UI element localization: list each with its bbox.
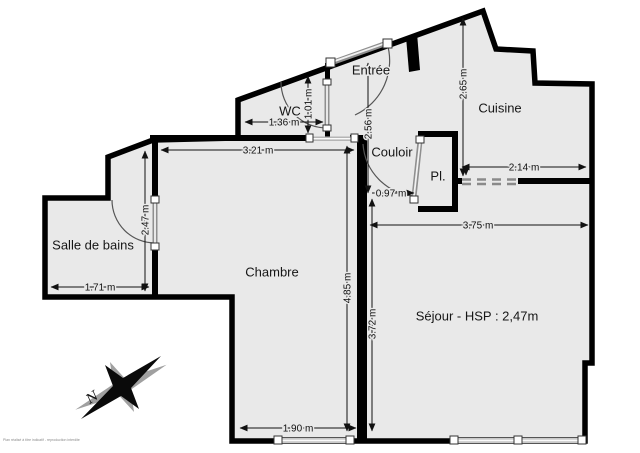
dimension-label: 1.71 m [85,283,116,294]
dimension-label: 0.97 m [376,189,407,200]
dimension-label: 1.01 m [304,89,315,120]
dimension-label: 2.14 m [509,163,540,174]
compass-rose: N [75,348,166,426]
closet-wall [418,206,458,212]
closet-wall [452,131,458,212]
floor-plan-page: 1.36 m 1.01 m 2.56 m 0.97 m 3.21 m 2.47 … [0,0,640,453]
room-label-sejour: Séjour - HSP : 2,47m [416,309,539,324]
dimension-label: 1.90 m [283,424,314,435]
watermark-text: Plan réalisé à titre indicatif - reprodu… [3,438,80,442]
compass-star [81,356,161,419]
wall [518,178,594,184]
dimension-label: 2.56 m [364,109,375,140]
dimension-label: 3.75 m [463,221,494,232]
dimension-label: 3.21 m [243,146,274,157]
room-label-entree: Entrée [352,63,390,78]
room-label-couloir: Couloir [371,145,413,160]
living-room-window [450,436,586,444]
dimension-label: 2.65 m [459,69,470,100]
dimension-label: 1.36 m [269,118,300,129]
room-label-cuisine: Cuisine [478,101,521,116]
room-label-placard: Pl. [430,169,445,184]
dimension-label: 2.47 m [141,205,152,236]
dimension-label: 4.85 m [343,273,354,304]
wall [150,135,313,141]
wall [152,140,158,198]
room-label-salle-de-bains: Salle de bains [52,238,134,253]
wall [152,246,158,297]
dimension-label: 3.72 m [368,309,379,340]
bedroom-window [274,436,354,444]
room-label-wc: WC [279,104,301,119]
floor-plan: 1.36 m 1.01 m 2.56 m 0.97 m 3.21 m 2.47 … [0,0,640,453]
room-label-chambre: Chambre [245,265,298,280]
wall [357,138,367,441]
wall [452,178,462,184]
